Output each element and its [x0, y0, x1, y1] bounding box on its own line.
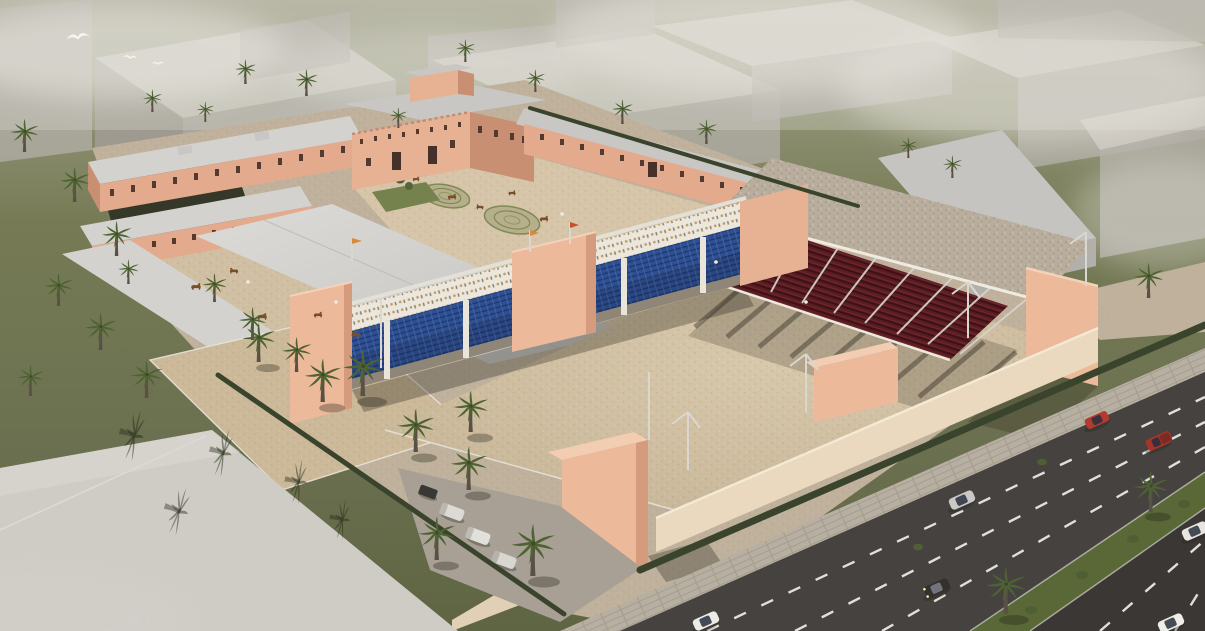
equestrian-complex-rendering — [0, 0, 1205, 631]
aerial-render-canvas — [0, 0, 1205, 631]
tree — [405, 182, 413, 190]
